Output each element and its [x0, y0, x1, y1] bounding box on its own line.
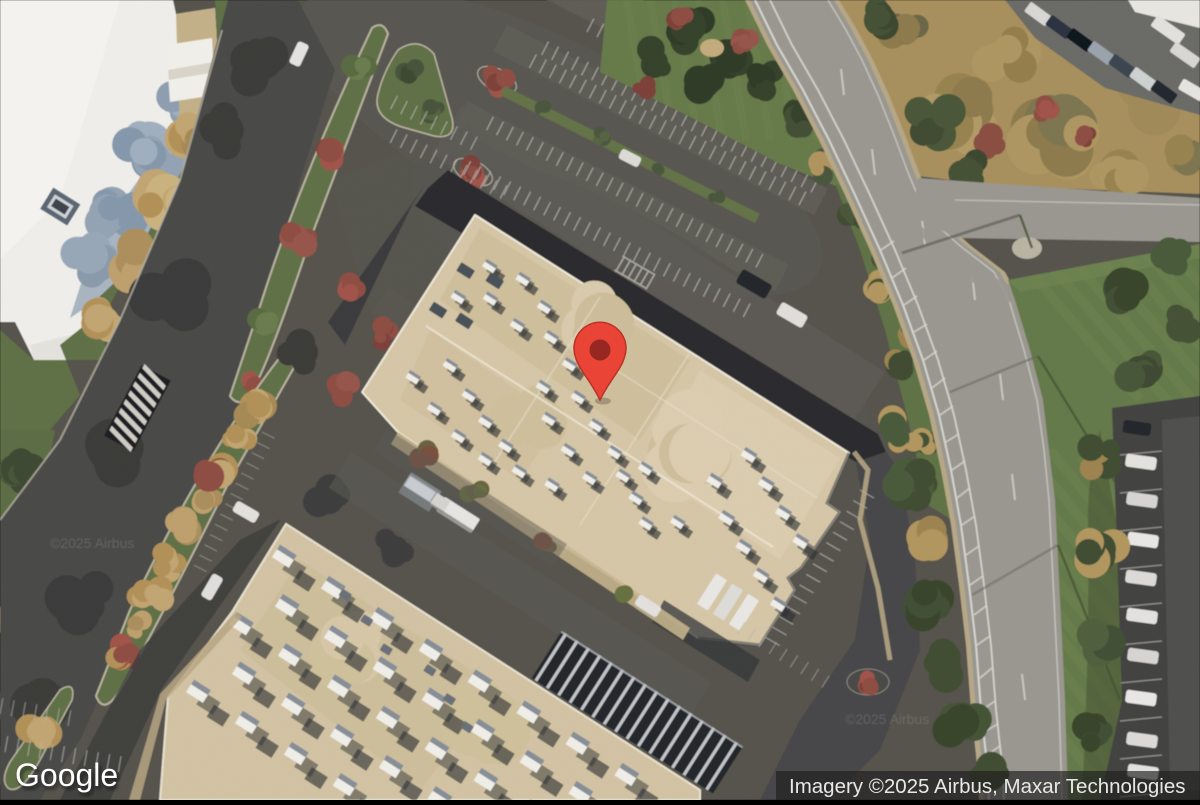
svg-text:Imagery ©2025 Airbus, Maxar Te: Imagery ©2025 Airbus, Maxar Technologies — [789, 775, 1185, 798]
svg-text:Google: Google — [15, 757, 118, 793]
